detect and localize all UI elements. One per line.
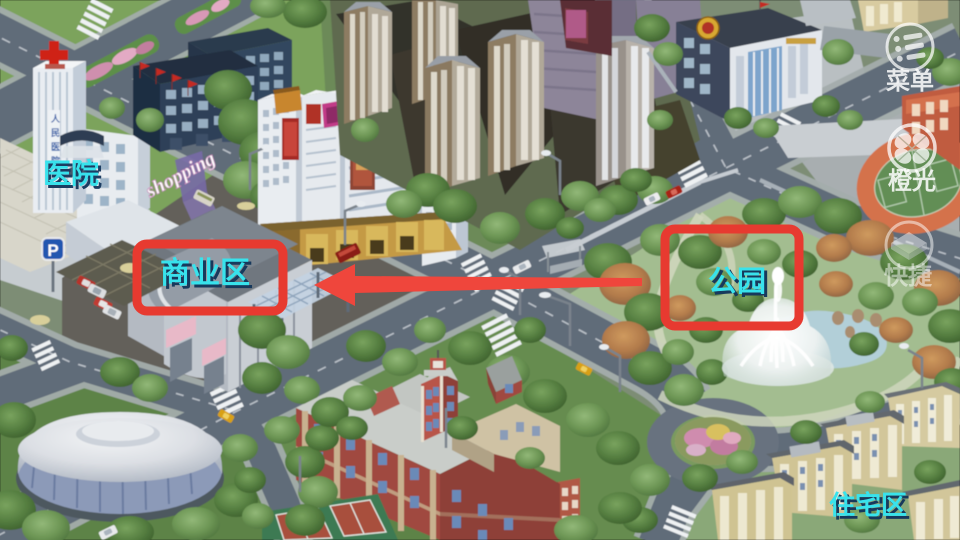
- svg-text:住宅区: 住宅区: [829, 490, 907, 520]
- svg-text:P: P: [47, 241, 58, 260]
- svg-text:医院: 医院: [43, 157, 99, 189]
- svg-text:快捷: 快捷: [884, 263, 932, 290]
- svg-text:医: 医: [51, 142, 60, 152]
- svg-text:公园: 公园: [708, 266, 766, 298]
- svg-text:菜单: 菜单: [885, 68, 934, 95]
- svg-text:橙光: 橙光: [888, 168, 936, 195]
- svg-text:人: 人: [50, 113, 61, 124]
- svg-text:民: 民: [51, 128, 60, 138]
- svg-text:商业区: 商业区: [160, 257, 250, 290]
